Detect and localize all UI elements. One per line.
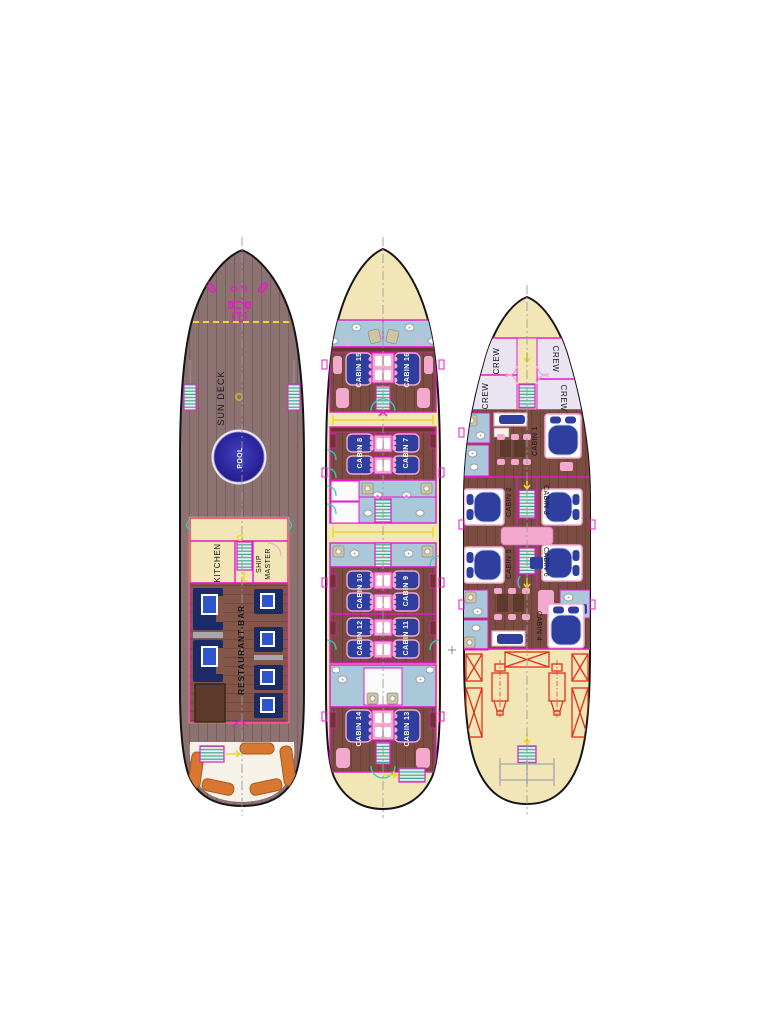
sofa-right-3 — [254, 665, 283, 690]
stern-cushion — [240, 743, 274, 754]
seat — [336, 748, 350, 768]
bar-counter — [195, 684, 225, 722]
label-cabin-12: CABIN 12 — [357, 620, 364, 655]
yacht-deck-plans: SUN DECK POOL KITCHEN SHIP MASTER RESTAU… — [0, 0, 768, 1024]
chair — [424, 356, 433, 374]
seat — [417, 388, 430, 408]
label-ship: SHIP — [256, 555, 263, 573]
table — [530, 557, 543, 569]
chair — [333, 356, 342, 374]
label-master: MASTER — [265, 548, 272, 580]
bed-cabin-1 — [545, 414, 581, 458]
label-pool: POOL — [237, 447, 244, 469]
sofa-divider — [193, 632, 223, 638]
label-cabin-2: CABIN 2 — [506, 487, 513, 517]
label-cabin-10: CABIN 10 — [357, 573, 364, 608]
label-crew-1: CREW — [492, 348, 501, 375]
label-cabin-5: CABIN 5 — [506, 549, 513, 579]
label-cabin-3: CABIN 3 — [542, 485, 549, 515]
reference-cross — [448, 646, 456, 654]
deck-lower: CREW CREW CREW CREW CABIN 1 CABIN 2 CABI… — [448, 285, 595, 814]
stern-ladder-main — [399, 768, 425, 782]
label-cabin-1: CABIN 1 — [532, 426, 539, 456]
stern-ladder — [200, 746, 224, 762]
deck-plan-canvas: SUN DECK POOL KITCHEN SHIP MASTER RESTAU… — [0, 0, 768, 1024]
deck-main: CABIN 15 CABIN 16 CABIN 8 CABIN 7 CABIN … — [322, 237, 444, 818]
label-cabin-14: CABIN 14 — [356, 711, 363, 746]
sofa-left-1 — [193, 588, 224, 630]
sofa-right-2 — [254, 627, 283, 652]
chair — [560, 462, 573, 471]
label-restaurant-bar: RESTAURANT-BAR — [236, 605, 246, 695]
stairs-deckhouse — [237, 542, 252, 570]
label-kitchen: KITCHEN — [213, 543, 222, 582]
deck-sun: SUN DECK POOL KITCHEN SHIP MASTER RESTAU… — [178, 237, 308, 816]
label-cabin-16: CABIN 16 — [404, 352, 411, 387]
label-cabin-6: CABIN 6 — [542, 547, 549, 577]
sofa-right-4 — [254, 693, 283, 718]
label-cabin-13: CABIN 13 — [404, 711, 411, 746]
sofa-right-1 — [254, 589, 283, 614]
label-cabin-15: CABIN 15 — [356, 352, 363, 387]
label-cabin-11: CABIN 11 — [403, 621, 410, 656]
sofa-divider — [254, 655, 283, 660]
label-crew-4: CREW — [559, 385, 568, 412]
seat — [416, 748, 430, 768]
seat — [336, 388, 349, 408]
bed-cabin-2 — [464, 489, 504, 525]
label-sun-deck: SUN DECK — [216, 370, 226, 425]
sofa-left-2 — [193, 640, 224, 682]
label-cabin-8: CABIN 8 — [357, 438, 364, 469]
label-cabin-4: CABIN 4 — [535, 611, 542, 641]
bed-cabin-4 — [548, 604, 584, 648]
label-crew-3: CREW — [481, 383, 490, 410]
label-crew-2: CREW — [551, 346, 560, 373]
label-cabin-9: CABIN 9 — [403, 576, 410, 607]
label-cabin-7: CABIN 7 — [403, 438, 410, 469]
bed-cabin-5 — [464, 547, 504, 583]
